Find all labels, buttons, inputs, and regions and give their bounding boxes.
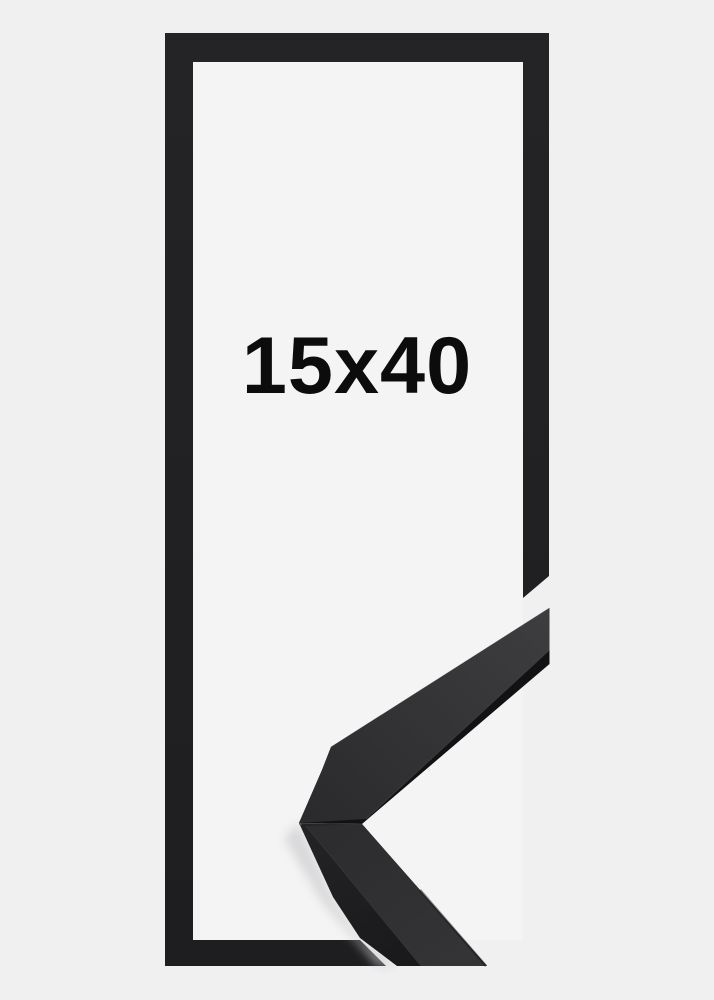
- frame-border-bottom: [165, 940, 386, 966]
- frame-graphic: [0, 0, 714, 1000]
- product-image: 15x40: [0, 0, 714, 1000]
- frame-border-right: [523, 33, 549, 598]
- corner-detail-corner-glint: [299, 823, 302, 826]
- corner-detail-miter-seam: [300, 824, 362, 825]
- frame-border-top: [165, 33, 549, 62]
- frame-border-left: [165, 33, 193, 966]
- frame-size-label: 15x40: [165, 326, 549, 407]
